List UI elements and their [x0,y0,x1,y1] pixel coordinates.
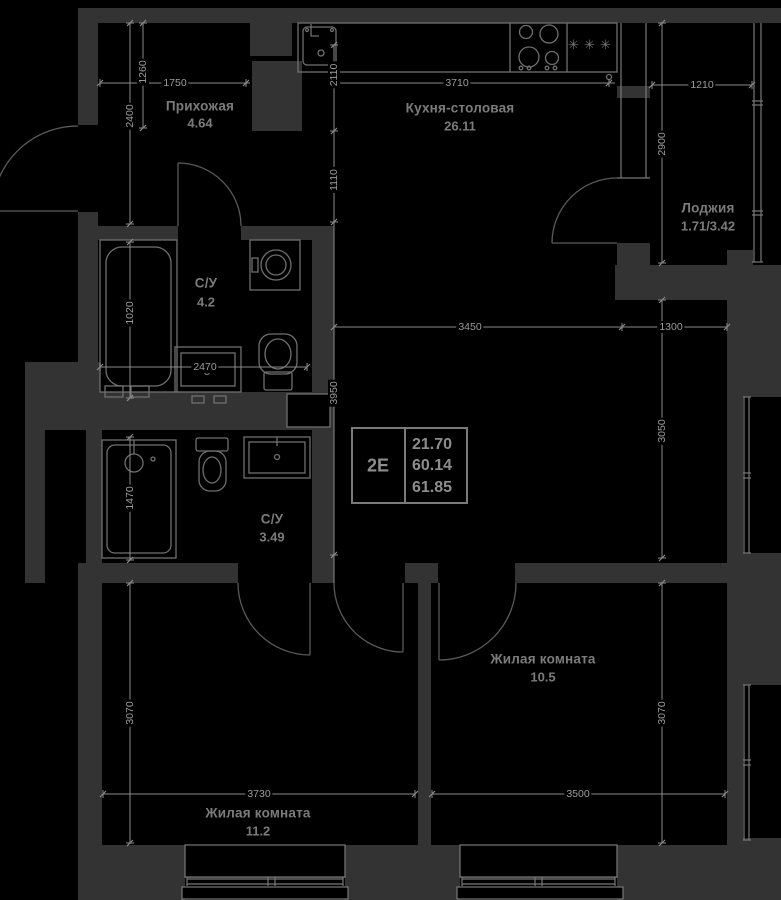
dim-label: 1300 [657,321,684,333]
room-label-hallway: Прихожая [163,99,237,114]
toilet-icon [259,334,297,390]
dim-label: 2900 [656,130,668,157]
loggia-partition-window-icon [617,23,650,178]
vent-shaft-icon [287,394,330,427]
apartment-type-label: 2Е [364,456,392,477]
dim-label: 3070 [124,699,136,726]
balcony-door-icon [552,178,617,243]
window-icon [743,397,751,553]
stove-icon [519,25,559,70]
bathtub-icon [100,240,177,397]
area-main-value: 60.14 [412,457,452,475]
floor-plan: Прихожая 4.64 Кухня-столовая 26.11 Лоджи… [0,0,781,900]
dim-label: 1210 [688,79,715,91]
dim-label: 3730 [245,788,272,800]
dim-label: 3050 [656,417,668,444]
dim-label: 3450 [456,321,483,333]
entrance-door-icon [0,126,78,212]
shower-icon [102,440,176,558]
room-area-hallway: 4.64 [184,116,215,131]
dim-label: 2400 [124,102,136,129]
bathroom2-door-icon [238,583,310,655]
room-label-bathroom-1: С/У [192,276,221,291]
area-total-value: 61.85 [412,479,452,497]
room-label-bathroom-2: С/У [258,512,287,527]
room-label-loggia: Лоджия [678,201,737,216]
dim-label: 1260 [137,58,149,85]
window-icon [182,845,348,899]
toilet-icon [196,438,228,491]
loggia-glazing-icon [752,23,763,262]
room-label-kitchen: Кухня-столовая [403,101,518,116]
sink-icon [244,437,310,478]
windows [182,23,763,899]
dim-label: 2470 [191,361,218,373]
room-area-living-room-1: 10.5 [527,670,558,685]
dim-label: 1110 [328,167,340,193]
dim-label: 1750 [161,77,188,89]
dim-end-dot [607,75,612,80]
room-10-door-icon [439,583,516,660]
room-area-living-room-2: 11.2 [243,824,274,839]
dim-label: 2110 [328,62,340,89]
room-area-kitchen: 26.11 [441,119,479,134]
room-label-living-room-2: Жилая комната [202,806,313,821]
room-11-door-icon [334,583,403,652]
room-area-bathroom-2: 3.49 [256,530,287,545]
dim-label: 3710 [443,77,470,89]
dim-label: 3500 [564,788,591,800]
area-living-value: 21.70 [412,436,452,454]
dim-label: 3070 [656,699,668,726]
fridge-icon: ✳✳✳ [565,37,619,53]
dim-label: 1470 [124,484,136,511]
window-icon [743,685,751,840]
room-label-living-room-1: Жилая комната [487,652,598,667]
dim-label: 3950 [328,379,340,406]
window-icon [457,845,623,899]
bathroom-door-icon [178,163,241,226]
room-area-bathroom-1: 4.2 [194,295,218,310]
room-area-loggia: 1.71/3.42 [678,219,738,234]
washing-machine-icon [250,240,300,290]
dim-label: 1020 [124,299,136,326]
